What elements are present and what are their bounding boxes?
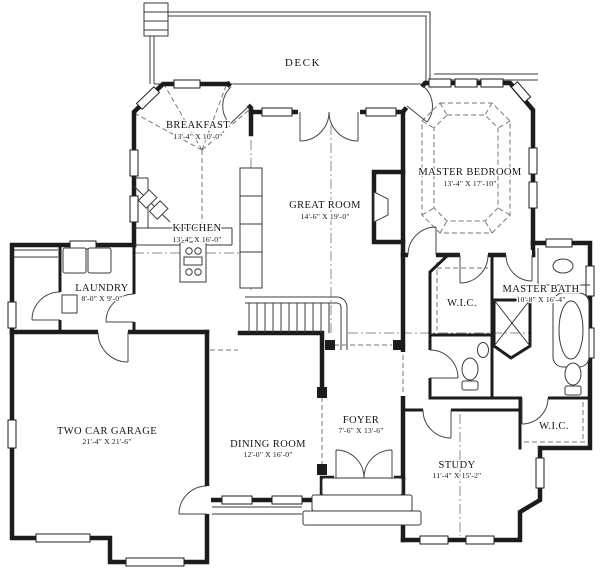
- room-dims-laundry: 8'-0" X 9'-0": [81, 294, 122, 303]
- sink: [553, 259, 573, 273]
- room-dims-dining-room: 12'-0" X 16'-0": [243, 450, 292, 459]
- room-dims-study: 11'-4" X 15'-2": [433, 471, 482, 480]
- side-stoop: [14, 250, 58, 257]
- windows: [8, 79, 594, 566]
- room-dims-breakfast: 13'-4" X 10'-0": [173, 132, 222, 141]
- floor-plan: DECK BREAKFAST 13'-4" X 10'-0" KITCHEN 1…: [0, 0, 600, 570]
- room-label-kitchen: KITCHEN: [173, 223, 222, 234]
- deck-outline: [144, 3, 538, 84]
- room-dims-garage: 21'-4" X 21'-6": [82, 437, 131, 446]
- refrigerator-counter: [240, 168, 262, 288]
- washer: [63, 248, 86, 273]
- kitchen-sink: [139, 190, 157, 208]
- bathtub: [553, 293, 589, 367]
- shower: [494, 300, 530, 358]
- wic1-shelves: [437, 262, 488, 330]
- room-label-dining-room: DINING ROOM: [230, 439, 306, 450]
- corner-sink-counter: [134, 186, 170, 222]
- room-label-wic-2: W.I.C.: [539, 421, 569, 432]
- room-dims-kitchen: 13'-4" X 16'-0": [172, 235, 221, 244]
- bath-fixtures: [462, 248, 590, 395]
- dryer: [88, 248, 111, 273]
- laundry-fixtures: [14, 248, 111, 313]
- vanity: [538, 248, 590, 285]
- room-label-master-bath: MASTER BATH: [502, 284, 579, 295]
- floor-plan-drawing: DECK BREAKFAST 13'-4" X 10'-0" KITCHEN 1…: [0, 0, 600, 570]
- dining-porch-lines: [212, 507, 302, 514]
- utility-cabinet: [62, 295, 77, 313]
- exterior-walls: [12, 83, 590, 562]
- cooktop: [184, 257, 202, 265]
- room-dims-master-bedroom: 13'-4" X 17'-10": [443, 179, 496, 188]
- room-label-study: STUDY: [438, 460, 475, 471]
- room-dims-great-room: 14'-6" X 19'-0": [300, 212, 349, 221]
- room-label-master-bedroom: MASTER BEDROOM: [418, 167, 522, 178]
- kitchen-sink: [150, 201, 168, 219]
- room-label-great-room: GREAT ROOM: [289, 200, 361, 211]
- room-label-garage: TWO CAR GARAGE: [57, 426, 157, 437]
- powder-sink: [478, 343, 489, 358]
- room-label-foyer: FOYER: [343, 415, 379, 426]
- deck-steps: [144, 3, 168, 36]
- room-label-laundry: LAUNDRY: [75, 283, 129, 294]
- fireplace: [374, 172, 403, 242]
- room-label-wic-1: W.I.C.: [447, 298, 477, 309]
- ceiling-lines: [134, 86, 585, 536]
- room-label-deck: DECK: [285, 57, 321, 69]
- kitchen-island: [180, 242, 206, 282]
- room-label-breakfast: BREAKFAST: [166, 120, 230, 131]
- toilet: [565, 363, 581, 395]
- room-dims-master-bath: 10'-8" X 16'-4": [516, 295, 565, 304]
- powder-toilet: [462, 358, 478, 390]
- room-dims-foyer: 7'-6" X 13'-6": [338, 426, 383, 435]
